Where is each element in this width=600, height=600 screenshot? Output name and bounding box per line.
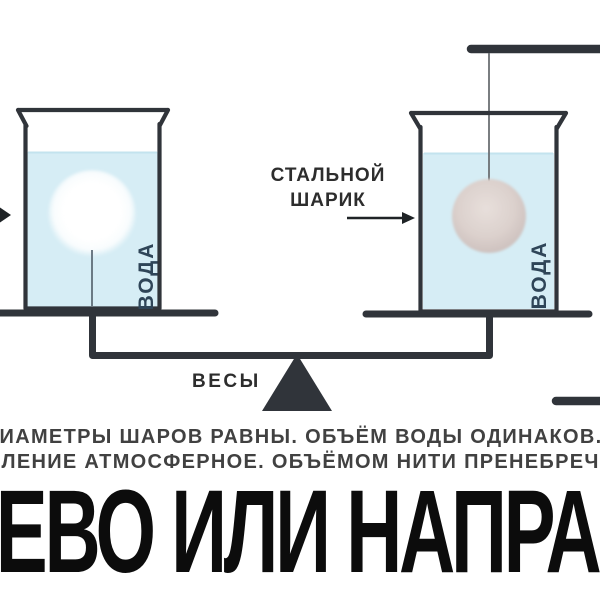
water-label-left: ВОДА: [135, 242, 159, 311]
steel-ball-label-line1: СТАЛЬНОЙ: [250, 163, 406, 188]
steel-ball: [452, 179, 526, 253]
steel-label-arrow-icon: [402, 212, 415, 224]
water-label-right: ВОДА: [528, 241, 552, 310]
question-banner: ВЛЕВО ИЛИ НАПРАВО: [0, 473, 600, 600]
caption-line1: ДИАМЕТРЫ ШАРОВ РАВНЫ. ОБЪЁМ ВОДЫ ОДИНАКО…: [0, 426, 600, 449]
pingpong-ball: [48, 170, 136, 258]
fulcrum-triangle: [262, 354, 332, 411]
balance-beam: [93, 314, 490, 356]
steel-ball-label-line2: ШАРИК: [250, 188, 406, 213]
scales-label: ВЕСЫ: [192, 371, 261, 393]
left-edge-arrow-icon: [0, 208, 11, 223]
physics-puzzle-diagram: СТАЛЬНОЙ ШАРИК ВОДА ВОДА ВЕСЫ ДИАМЕТРЫ Ш…: [0, 0, 600, 600]
steel-ball-label: СТАЛЬНОЙ ШАРИК: [250, 163, 406, 213]
question-text: ВЛЕВО ИЛИ НАПРАВО: [0, 473, 600, 591]
